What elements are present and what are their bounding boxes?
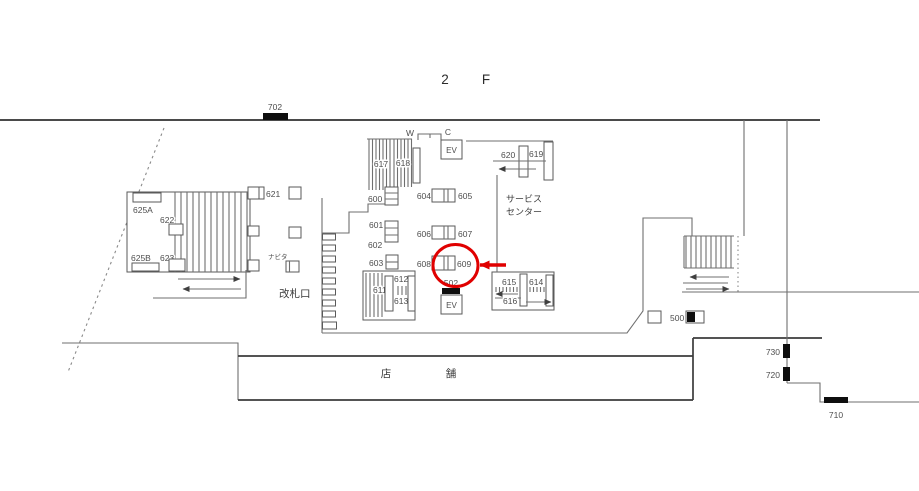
sign-603: 603 [369,255,398,269]
small-square [248,260,259,271]
label-617: 617 [374,159,388,169]
floor-letter: F [482,72,490,87]
label-625A: 625A [133,205,153,215]
label-600: 600 [368,194,382,204]
label-shop-1: 店 [381,367,392,380]
ticket-gates [323,234,337,329]
navita-kiosk: ナビタ [268,252,299,272]
small-square [289,227,301,238]
stairs-611-block: 611 612 613 [363,271,415,320]
label-614: 614 [529,277,543,287]
sign-702: 702 [263,102,288,120]
center-stairs-617-618: 617 618 [367,139,420,190]
label-service-center-2: センター [506,207,542,217]
label-710: 710 [829,410,843,420]
label-608: 608 [417,259,431,269]
label-ev-lower: EV [446,301,457,310]
sign-622 [169,224,183,235]
label-navita: ナビタ [268,252,288,261]
stairs-614-block: 615 614 616 [492,272,554,310]
sign-623 [169,259,185,271]
label-615: 615 [502,277,516,287]
label-606: 606 [417,229,431,239]
label-625B: 625B [131,253,151,263]
label-605: 605 [458,191,472,201]
floor-plan-svg: 2 F 702 625A 625B 622 623 621 [0,0,919,491]
label-service-center-1: サービス [506,194,542,204]
elevator-upper: EV [441,140,462,159]
small-square [248,226,259,236]
sign-606-607: 606 607 [417,226,473,239]
label-603: 603 [369,258,383,268]
door-icon [418,134,441,140]
label-621: 621 [266,189,280,199]
label-c-toilet: C [445,127,451,137]
label-ev-upper: EV [446,146,457,155]
label-620: 620 [501,150,515,160]
label-500: 500 [670,313,684,323]
label-w-toilet: W [406,128,414,138]
wc-toilets: W C [406,127,451,140]
sign-604-605: 604 605 [417,189,473,202]
shop-area: 店 舗 [381,367,457,380]
station-floor-map: 2 F 702 625A 625B 622 623 621 [0,0,919,491]
label-ticket-gate: 改札口 [279,287,311,300]
floor-number: 2 [441,72,449,87]
small-square [648,311,661,323]
label-720: 720 [766,370,780,380]
label-602: 602 [368,240,382,250]
sign-720: 720 [766,367,790,381]
label-702: 702 [268,102,282,112]
sign-625B [132,263,159,271]
label-609: 609 [457,259,471,269]
label-shop-2: 舗 [446,367,457,380]
label-730: 730 [766,347,780,357]
sign-730: 730 [766,344,790,358]
sign-621 [248,187,259,199]
label-601: 601 [369,220,383,230]
label-612: 612 [394,274,408,284]
label-616: 616 [503,296,517,306]
right-staircase [683,236,734,289]
small-square [289,187,301,199]
sign-601-602: 601 602 [368,220,398,250]
label-604: 604 [417,191,431,201]
left-staircase: 625A 625B 622 623 621 [127,187,301,298]
elevator-lower: EV [441,288,462,314]
label-619: 619 [529,149,543,159]
label-613: 613 [394,296,408,306]
sign-625A [133,193,161,202]
ev-ad-bar [442,288,460,294]
sign-500: 500 [648,311,704,323]
sign-710: 710 [824,397,848,420]
label-618: 618 [396,158,410,168]
sign-608-609: 608 609 [417,256,472,270]
service-center: 620 619 サービス センター [466,141,553,272]
railing [153,270,246,298]
label-607: 607 [458,229,472,239]
